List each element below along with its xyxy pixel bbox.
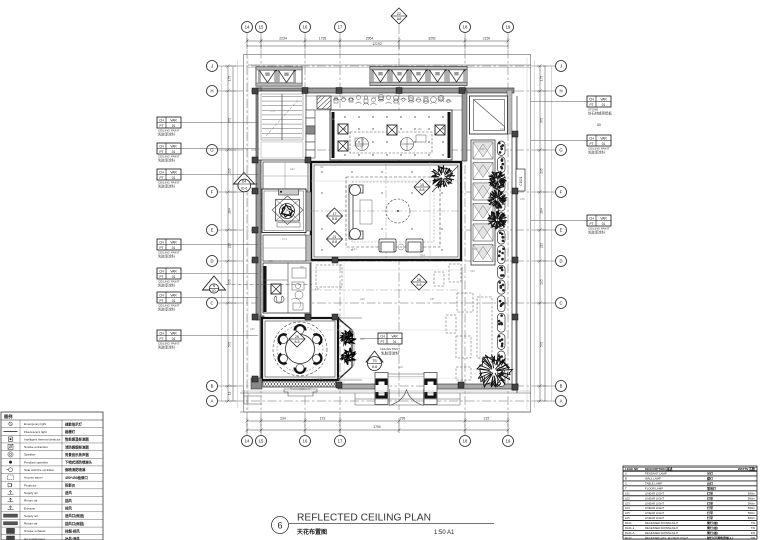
- svg-text:ID-6: ID-6: [241, 187, 247, 191]
- svg-text:18: 18: [463, 25, 468, 30]
- svg-text:K26: K26: [480, 147, 485, 151]
- svg-text:K85: K85: [268, 259, 273, 263]
- svg-text:送风: 送风: [64, 490, 72, 495]
- svg-text:L04: L04: [625, 506, 630, 510]
- svg-text:I20: I20: [418, 127, 422, 131]
- svg-text:乳胶漆涂料: 乳胶漆涂料: [381, 351, 399, 356]
- svg-text:450*450检修口: 450*450检修口: [65, 475, 88, 480]
- svg-text:乳胶漆涂料: 乳胶漆涂料: [588, 230, 606, 235]
- svg-text:DESCRIPTION 描述: DESCRIPTION 描述: [645, 466, 673, 471]
- svg-text:17: 17: [333, 212, 337, 216]
- svg-text:WALL LAMP: WALL LAMP: [645, 477, 661, 481]
- svg-text:B: B: [625, 477, 627, 481]
- svg-text:仿石材蜂窝铝板: 仿石材蜂窝铝板: [588, 111, 612, 116]
- svg-text:I22: I22: [320, 165, 324, 169]
- svg-text:L02: L02: [625, 496, 630, 500]
- svg-text:K87: K87: [430, 297, 435, 301]
- svg-text:乳胶漆涂料: 乳胶漆涂料: [158, 184, 176, 189]
- svg-text:7W: 7W: [751, 536, 756, 540]
- svg-text:8.8: 8.8: [332, 217, 337, 221]
- svg-text:TS: TS: [372, 359, 377, 363]
- svg-text:F: F: [560, 190, 563, 195]
- svg-text:J: J: [211, 64, 213, 69]
- svg-text:Supply air: Supply air: [24, 514, 38, 518]
- svg-text:Exhaust: Exhaust: [24, 506, 35, 510]
- svg-text:22: 22: [397, 12, 401, 16]
- svg-text:375: 375: [540, 118, 544, 124]
- svg-text:215: 215: [228, 243, 232, 249]
- svg-text:筒灯(嵌): 筒灯(嵌): [707, 525, 718, 530]
- svg-text:L65: L65: [372, 96, 377, 100]
- svg-text:8.8: 8.8: [332, 240, 337, 244]
- svg-text:12192: 12192: [372, 42, 382, 46]
- svg-text:CEILING PAINT: CEILING PAINT: [380, 347, 400, 351]
- svg-text:8.8: 8.8: [420, 188, 425, 192]
- svg-text:落地灯: 落地灯: [707, 485, 716, 490]
- svg-text:筒灯(嵌): 筒灯(嵌): [707, 530, 718, 535]
- svg-text:14: 14: [245, 25, 250, 30]
- svg-text:C73: C73: [270, 109, 275, 113]
- svg-text:Return air: Return air: [24, 522, 38, 526]
- svg-text:5W/m: 5W/m: [748, 501, 756, 505]
- svg-text:L03: L03: [625, 501, 630, 505]
- svg-text:173: 173: [320, 417, 326, 421]
- svg-text:PENDANT LAMP: PENDANT LAMP: [645, 472, 667, 476]
- svg-text:D: D: [559, 259, 562, 264]
- svg-text:LINEAR LIGHT: LINEAR LIGHT: [645, 506, 664, 510]
- svg-text:A24: A24: [290, 167, 295, 171]
- svg-text:C71: C71: [282, 237, 287, 241]
- svg-text:M9: M9: [262, 87, 266, 91]
- svg-text:A83: A83: [360, 337, 365, 341]
- svg-text:Smoke extraction: Smoke extraction: [24, 445, 48, 449]
- svg-text:J: J: [560, 64, 562, 69]
- svg-text:E: E: [211, 228, 214, 233]
- svg-text:Return air: Return air: [24, 499, 38, 503]
- svg-text:格栅灯: 格栅灯: [65, 429, 76, 434]
- svg-text:下喷式消防喷淋头: 下喷式消防喷淋头: [65, 460, 93, 465]
- svg-text:RECESSED DOWNLIGHT: RECESSED DOWNLIGHT: [645, 531, 679, 535]
- svg-text:E: E: [560, 228, 563, 233]
- svg-text:C: C: [210, 301, 213, 306]
- svg-text:LINEAR LIGHT: LINEAR LIGHT: [645, 501, 664, 505]
- svg-text:6: 6: [277, 521, 282, 531]
- svg-text:S75: S75: [318, 377, 323, 381]
- svg-text:背景音乐扬声器: 背景音乐扬声器: [65, 452, 89, 457]
- svg-text:295: 295: [228, 279, 232, 285]
- svg-text:A: A: [625, 472, 627, 476]
- svg-text:4W: 4W: [751, 531, 756, 535]
- svg-text:乳胶漆涂料: 乳胶漆涂料: [158, 283, 176, 288]
- svg-text:19: 19: [506, 439, 511, 444]
- svg-text:I84: I84: [300, 265, 304, 269]
- svg-text:D: D: [210, 259, 213, 264]
- svg-text:215: 215: [540, 243, 544, 249]
- svg-text:5W/m: 5W/m: [748, 496, 756, 500]
- svg-text:Supply air: Supply air: [24, 491, 38, 495]
- svg-text:A16: A16: [520, 197, 525, 201]
- svg-text:C1021: C1021: [519, 176, 523, 186]
- svg-text:灯带: 灯带: [707, 505, 713, 510]
- svg-text:C: C: [559, 301, 562, 306]
- svg-text:5W/m: 5W/m: [748, 491, 756, 495]
- svg-text:C: C: [625, 481, 627, 485]
- svg-text:LINEAR LIGHT: LINEAR LIGHT: [645, 496, 664, 500]
- svg-text:灯带: 灯带: [707, 510, 713, 515]
- svg-text:Emergency light: Emergency light: [24, 422, 46, 426]
- svg-text:Q44: Q44: [420, 253, 425, 257]
- svg-text:K18: K18: [300, 387, 305, 391]
- svg-text:L01: L01: [625, 491, 630, 495]
- svg-text:S49: S49: [340, 95, 345, 99]
- svg-text:LINEAR LIGHT: LINEAR LIGHT: [645, 516, 664, 520]
- svg-text:21: 21: [333, 235, 337, 239]
- svg-text:H: H: [210, 89, 213, 94]
- svg-text:LINEAR LIGHT: LINEAR LIGHT: [645, 511, 664, 515]
- svg-text:B: B: [560, 384, 563, 389]
- svg-text:L06: L06: [625, 516, 630, 520]
- svg-text:A5: A5: [597, 123, 601, 127]
- svg-text:A8: A8: [397, 17, 401, 21]
- svg-text:智能感温探测器: 智能感温探测器: [64, 437, 89, 442]
- svg-text:17: 17: [338, 25, 343, 30]
- svg-text:11: 11: [228, 392, 232, 396]
- svg-text:26: 26: [295, 335, 299, 339]
- svg-text:2150: 2150: [483, 37, 491, 41]
- svg-text:T: T: [625, 486, 627, 490]
- svg-text:G91: G91: [398, 365, 403, 369]
- svg-text:台灯: 台灯: [707, 480, 713, 485]
- svg-text:REFLECTED CEILING PLAN: REFLECTED CEILING PLAN: [297, 513, 431, 524]
- svg-text:295: 295: [540, 168, 544, 174]
- svg-text:8W/m: 8W/m: [748, 516, 756, 520]
- svg-text:C91: C91: [470, 269, 475, 273]
- svg-text:LINEAR LIGHT: LINEAR LIGHT: [645, 491, 664, 495]
- svg-text:8.8: 8.8: [295, 340, 300, 344]
- svg-text:1735: 1735: [319, 37, 327, 41]
- svg-text:排烟·排风: 排烟·排风: [65, 528, 80, 533]
- svg-text:B: B: [211, 384, 214, 389]
- svg-text:C48: C48: [472, 247, 477, 251]
- svg-text:8.8: 8.8: [372, 365, 377, 369]
- svg-text:A: A: [211, 399, 214, 404]
- svg-text:筒灯(嵌): 筒灯(嵌): [707, 520, 718, 525]
- svg-text:灯带: 灯带: [707, 515, 713, 520]
- svg-text:19: 19: [506, 25, 511, 30]
- svg-text:疏散指示灯: 疏散指示灯: [65, 421, 83, 426]
- svg-text:18: 18: [463, 439, 468, 444]
- svg-text:2954: 2954: [366, 37, 374, 41]
- svg-text:2A: 2A: [417, 278, 422, 282]
- svg-text:16: 16: [303, 439, 308, 444]
- svg-text:Side wall fire sprinkler: Side wall fire sprinkler: [24, 468, 54, 472]
- svg-text:射灯(可调角度嵌入): 射灯(可调角度嵌入): [706, 535, 733, 540]
- svg-text:264: 264: [228, 208, 232, 214]
- svg-text:D4: D4: [242, 180, 246, 184]
- svg-text:A39: A39: [360, 297, 365, 301]
- svg-text:14: 14: [245, 439, 250, 444]
- svg-text:乳胶漆涂料: 乳胶漆涂料: [158, 158, 176, 163]
- svg-text:投影仪: 投影仪: [65, 483, 76, 488]
- svg-text:侧喷消防喷淋: 侧喷消防喷淋: [64, 467, 86, 472]
- svg-text:5W/m: 5W/m: [748, 506, 756, 510]
- svg-text:L05: L05: [625, 511, 630, 515]
- svg-text:回风: 回风: [65, 498, 72, 503]
- svg-text:K10: K10: [500, 127, 505, 131]
- svg-text:215: 215: [484, 417, 490, 421]
- svg-text:17: 17: [338, 439, 343, 444]
- svg-text:吊灯: 吊灯: [707, 471, 713, 476]
- svg-text:RECESSED DOWNLIGHT: RECESSED DOWNLIGHT: [645, 521, 679, 525]
- svg-text:回风口(侧回): 回风口(侧回): [65, 521, 84, 526]
- svg-text:295: 295: [228, 168, 232, 174]
- svg-text:乳胶漆涂料: 乳胶漆涂料: [158, 132, 176, 137]
- svg-text:175: 175: [540, 76, 544, 82]
- svg-text:5W/m: 5W/m: [748, 511, 756, 515]
- svg-text:Projector: Projector: [24, 483, 36, 487]
- svg-text:乳胶漆涂料: 乳胶漆涂料: [158, 307, 176, 312]
- svg-text:264: 264: [540, 208, 544, 214]
- svg-text:Access panel: Access panel: [24, 476, 43, 480]
- svg-text:16: 16: [303, 25, 308, 30]
- svg-text:Pendant sprinkler: Pendant sprinkler: [24, 460, 48, 464]
- svg-text:H: H: [559, 89, 562, 94]
- svg-text:RL01: RL01: [625, 521, 632, 525]
- svg-text:乳胶漆涂料: 乳胶漆涂料: [158, 254, 176, 259]
- svg-text:575: 575: [228, 342, 232, 348]
- svg-text:7W: 7W: [751, 521, 756, 525]
- svg-text:RECESSED DOWNLIGHT: RECESSED DOWNLIGHT: [645, 526, 679, 530]
- svg-text:15: 15: [420, 183, 424, 187]
- svg-text:K24: K24: [330, 117, 335, 121]
- svg-text:送风口(侧送): 送风口(侧送): [64, 513, 84, 518]
- svg-text:F73: F73: [315, 287, 320, 291]
- svg-text:Intelligent thermal detector: Intelligent thermal detector: [24, 437, 60, 441]
- svg-text:RL01-A: RL01-A: [625, 531, 635, 535]
- svg-text:795: 795: [400, 417, 406, 421]
- svg-text:A50: A50: [250, 327, 255, 331]
- svg-text:1:50 A1: 1:50 A1: [434, 530, 455, 536]
- svg-text:15: 15: [259, 439, 264, 444]
- svg-text:壁灯: 壁灯: [706, 476, 713, 481]
- svg-text:G: G: [559, 148, 562, 153]
- svg-text:3292: 3292: [428, 37, 436, 41]
- svg-text:234: 234: [280, 417, 286, 421]
- svg-text:295: 295: [540, 279, 544, 285]
- svg-text:消防感烟探测器: 消防感烟探测器: [65, 444, 89, 449]
- svg-text:15: 15: [259, 25, 264, 30]
- svg-text:Speaker: Speaker: [24, 453, 36, 457]
- svg-text:RECESSED ADJ. ACCENT LIGHT: RECESSED ADJ. ACCENT LIGHT: [645, 536, 688, 540]
- svg-text:8.8: 8.8: [417, 283, 422, 287]
- svg-text:灯带: 灯带: [707, 495, 713, 500]
- svg-text:1750: 1750: [373, 425, 381, 429]
- svg-text:2234: 2234: [279, 37, 287, 41]
- svg-text:175: 175: [228, 76, 232, 82]
- svg-text:A: A: [560, 399, 563, 404]
- svg-text:图例: 图例: [4, 413, 12, 420]
- svg-text:乳胶漆涂料: 乳胶漆涂料: [588, 150, 606, 155]
- svg-text:灯带: 灯带: [707, 490, 713, 495]
- svg-text:RL02: RL02: [625, 536, 632, 540]
- svg-text:WATTS 瓦数: WATTS 瓦数: [738, 466, 755, 471]
- svg-text:Fluorescent light: Fluorescent light: [24, 430, 47, 434]
- svg-text:F32: F32: [255, 147, 260, 151]
- svg-text:排风: 排风: [65, 505, 72, 510]
- svg-text:FLOOR LAMP: FLOOR LAMP: [645, 486, 663, 490]
- svg-text:7W: 7W: [751, 526, 756, 530]
- svg-text:C21: C21: [352, 247, 357, 251]
- svg-text:乳胶漆涂料: 乳胶漆涂料: [158, 345, 176, 350]
- svg-text:575: 575: [540, 342, 544, 348]
- svg-text:F: F: [211, 190, 214, 195]
- svg-text:天花布置图: 天花布置图: [297, 528, 327, 536]
- svg-text:RL01-1: RL01-1: [625, 526, 635, 530]
- svg-text:灯带: 灯带: [707, 500, 713, 505]
- svg-text:补风·送风: 补风·送风: [65, 536, 80, 540]
- svg-text:Smoke exhaust: Smoke exhaust: [24, 529, 45, 533]
- svg-text:TABLE LAMP: TABLE LAMP: [645, 481, 662, 485]
